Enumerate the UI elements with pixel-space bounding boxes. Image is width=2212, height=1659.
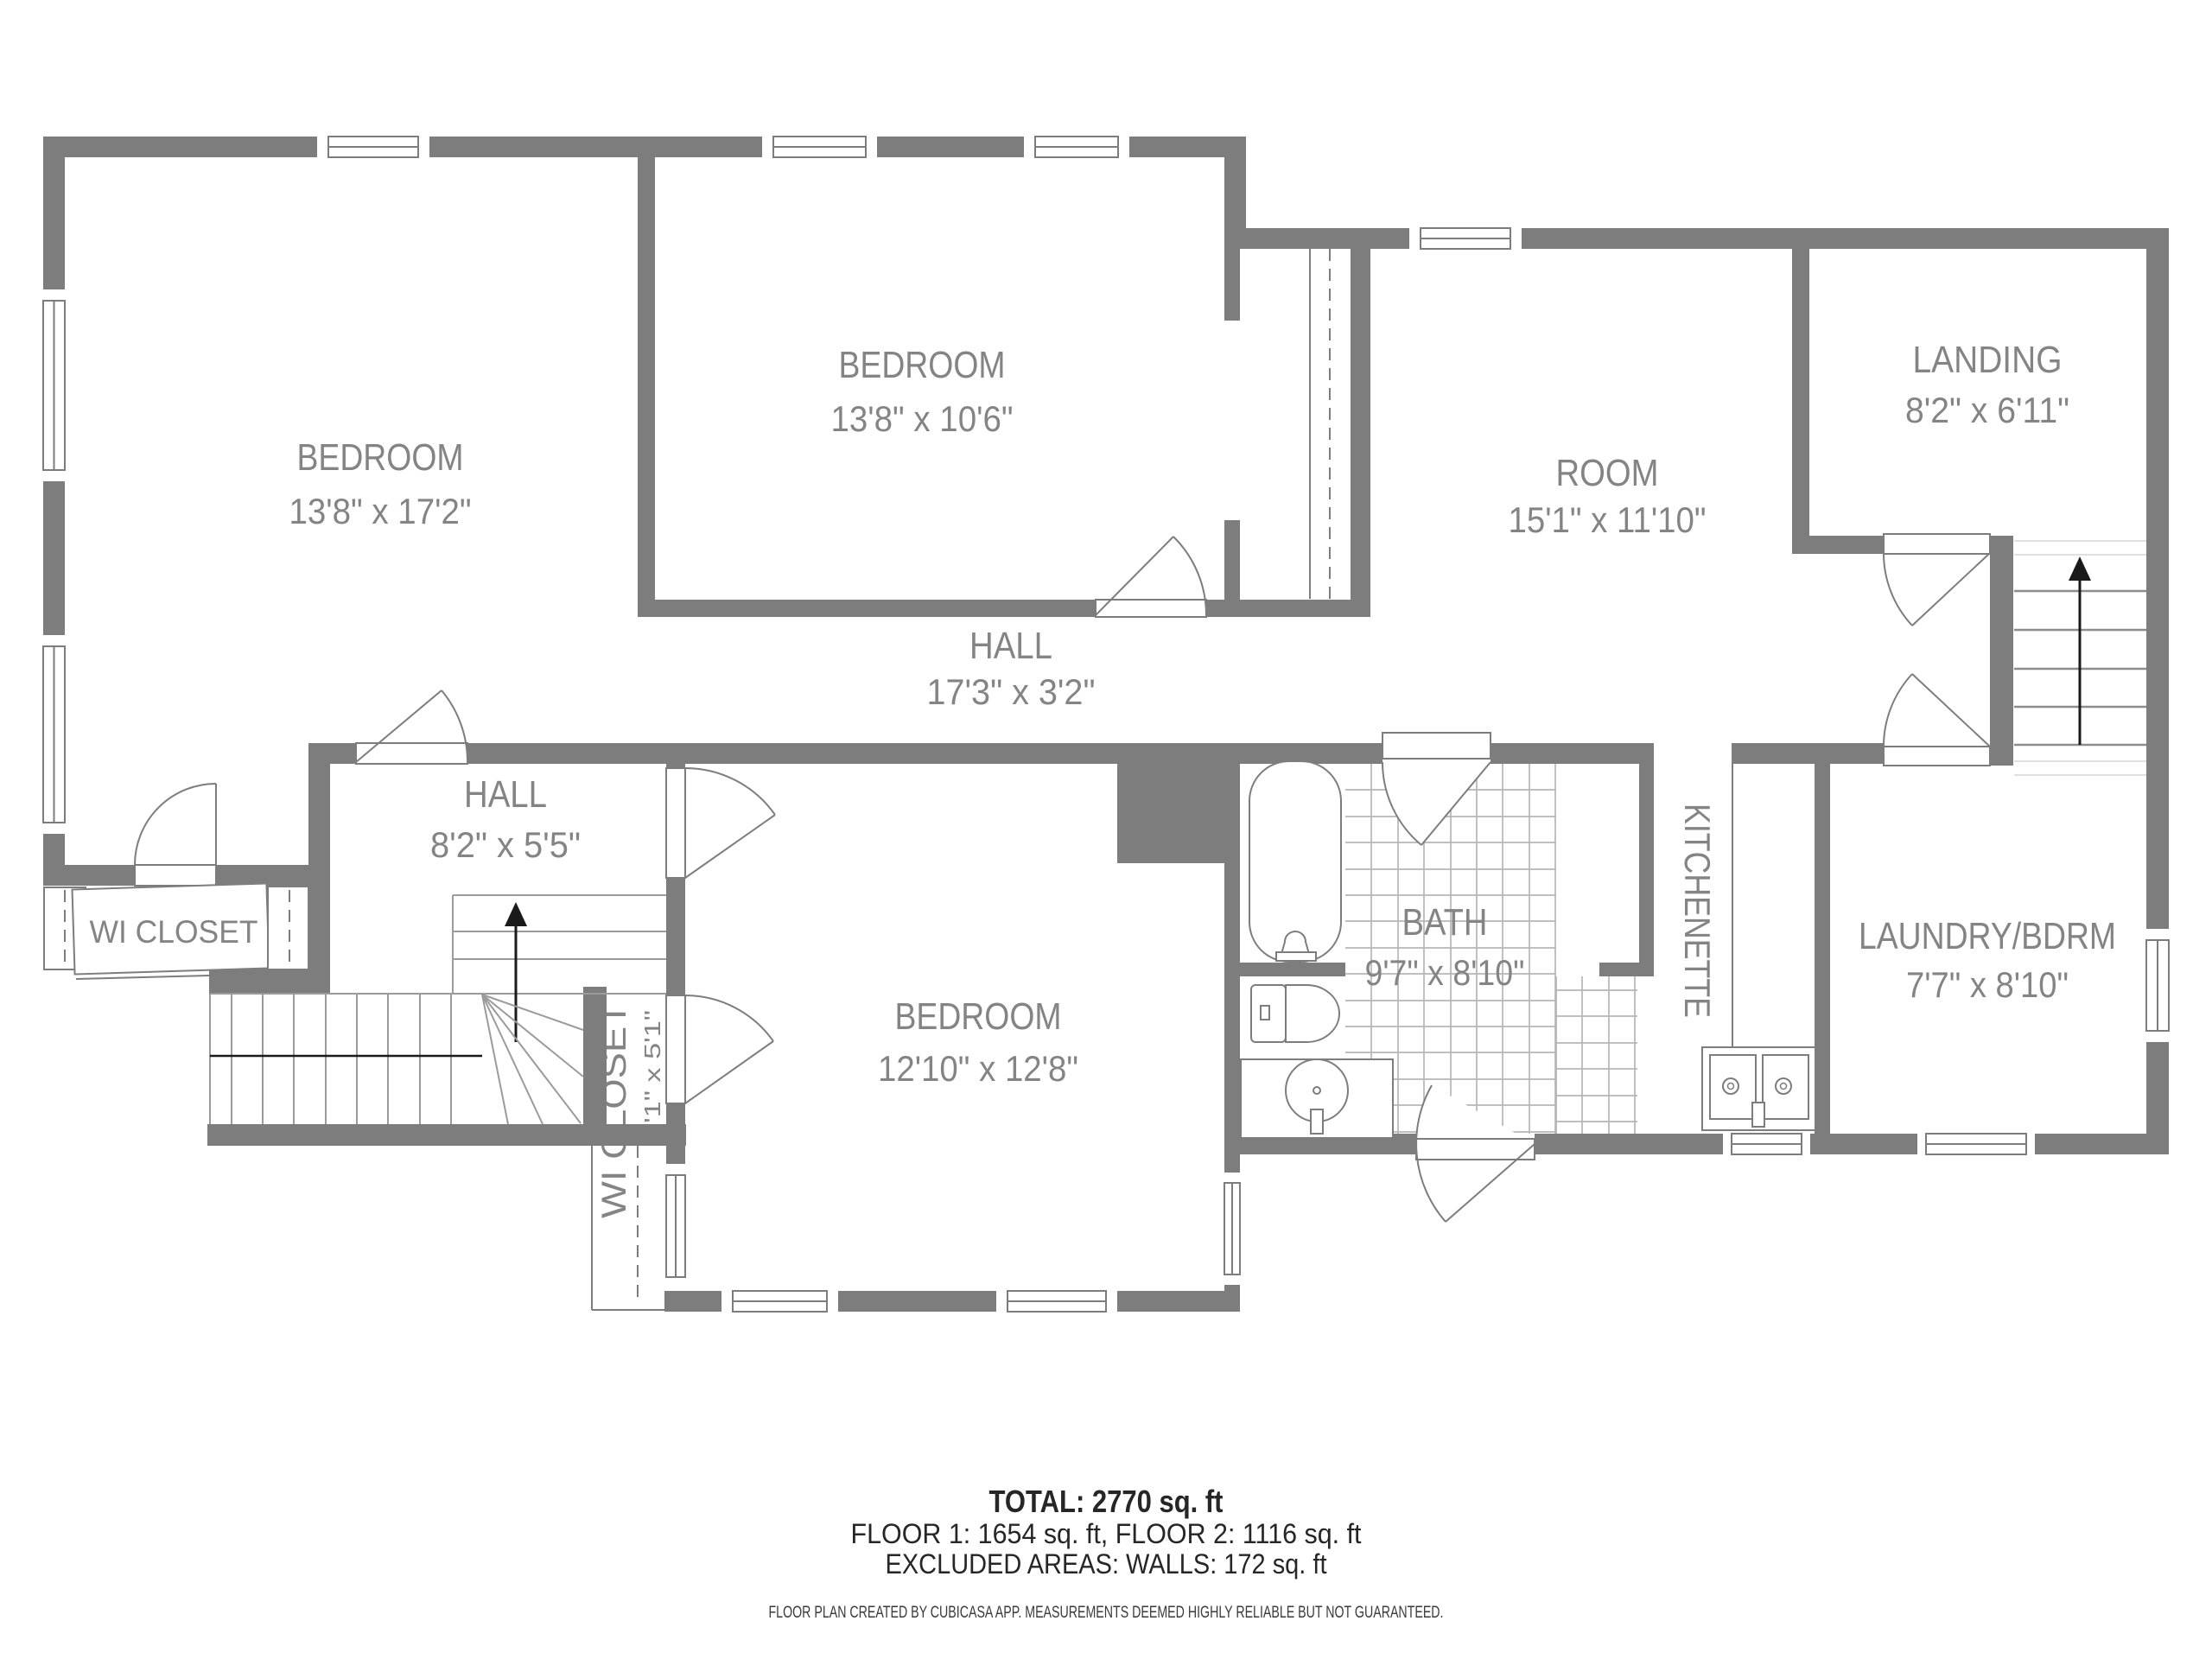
- svg-text:TOTAL: 2770 sq. ft: TOTAL: 2770 sq. ft: [989, 1484, 1224, 1519]
- svg-text:BEDROOM: BEDROOM: [895, 995, 1062, 1038]
- svg-text:BATH: BATH: [1402, 901, 1488, 944]
- svg-text:BEDROOM: BEDROOM: [839, 344, 1006, 386]
- svg-text:EXCLUDED AREAS: WALLS: 172 sq.: EXCLUDED AREAS: WALLS: 172 sq. ft: [886, 1548, 1327, 1580]
- svg-text:ROOM: ROOM: [1556, 452, 1659, 494]
- svg-text:9'7" x 8'10": 9'7" x 8'10": [1365, 952, 1525, 993]
- svg-text:KITCHENETTE: KITCHENETTE: [1677, 804, 1718, 1018]
- svg-text:LAUNDRY/BDRM: LAUNDRY/BDRM: [1859, 915, 2116, 957]
- svg-text:7'7" x 8'10": 7'7" x 8'10": [1906, 964, 2069, 1005]
- svg-text:13'8" x 10'6": 13'8" x 10'6": [831, 398, 1014, 439]
- svg-text:HALL: HALL: [969, 625, 1052, 667]
- svg-text:LANDING: LANDING: [1913, 339, 2063, 381]
- svg-text:17'3" x 3'2": 17'3" x 3'2": [927, 671, 1096, 712]
- svg-text:BEDROOM: BEDROOM: [297, 436, 464, 479]
- svg-text:FLOOR PLAN CREATED BY CUBICASA: FLOOR PLAN CREATED BY CUBICASA APP. MEAS…: [769, 1604, 1444, 1622]
- svg-text:FLOOR 1: 1654 sq. ft, FLOOR 2:: FLOOR 1: 1654 sq. ft, FLOOR 2: 1116 sq. …: [851, 1518, 1362, 1549]
- svg-text:15'1" x 11'10": 15'1" x 11'10": [1509, 499, 1707, 540]
- svg-text:1'1" x 5'1": 1'1" x 5'1": [639, 1010, 665, 1140]
- svg-text:13'8" x 17'2": 13'8" x 17'2": [289, 491, 472, 531]
- svg-text:WI CLOSET: WI CLOSET: [90, 914, 258, 950]
- svg-text:12'10" x 12'8": 12'10" x 12'8": [878, 1048, 1078, 1089]
- svg-text:HALL: HALL: [464, 773, 547, 816]
- svg-text:8'2" x 6'11": 8'2" x 6'11": [1905, 390, 2069, 430]
- svg-text:8'2" x 5'5": 8'2" x 5'5": [430, 824, 581, 865]
